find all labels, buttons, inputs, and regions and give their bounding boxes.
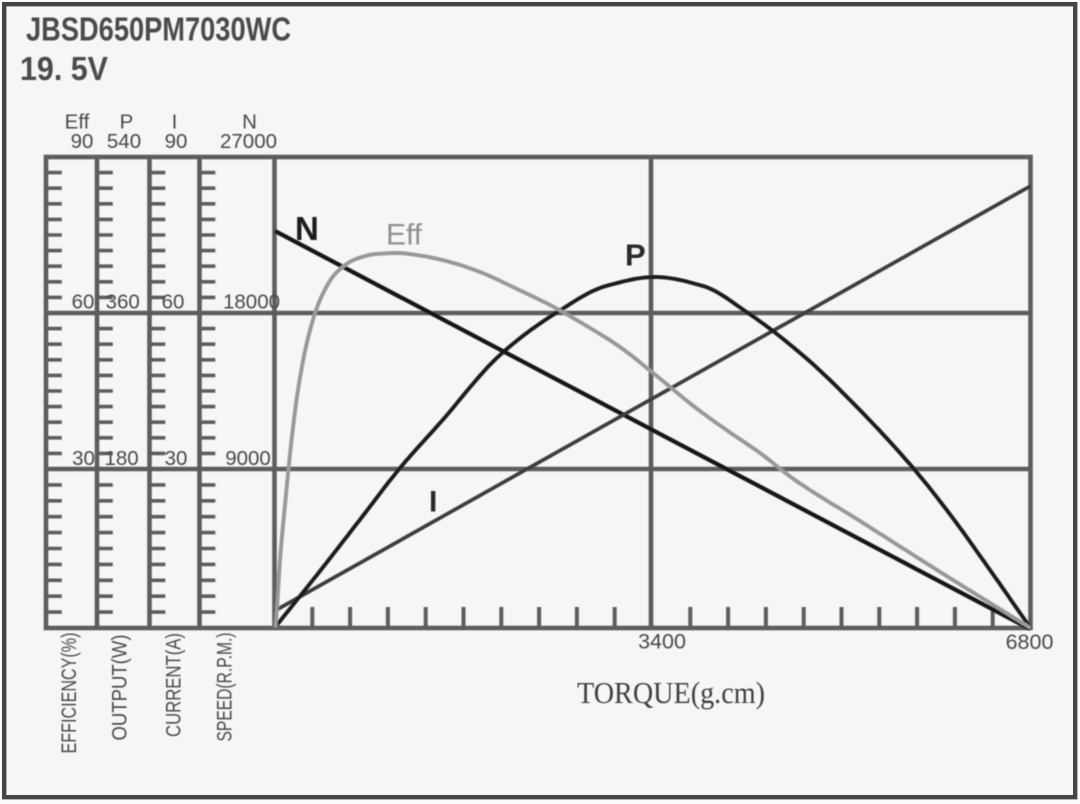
svg-text:540: 540: [107, 130, 141, 153]
svg-text:27000: 27000: [220, 130, 277, 153]
svg-text:Eff: Eff: [386, 219, 423, 252]
svg-text:N: N: [295, 210, 319, 247]
svg-text:19. 5V: 19. 5V: [20, 50, 108, 87]
svg-text:6800: 6800: [1006, 630, 1054, 654]
svg-text:30: 30: [72, 447, 95, 470]
svg-text:60: 60: [72, 291, 95, 314]
svg-text:30: 30: [165, 447, 188, 470]
svg-text:TORQUE(g.cm): TORQUE(g.cm): [577, 675, 765, 710]
svg-text:90: 90: [165, 130, 188, 153]
svg-text:3400: 3400: [638, 630, 686, 654]
svg-text:9000: 9000: [225, 447, 271, 470]
svg-text:P: P: [625, 238, 646, 273]
svg-text:360: 360: [106, 291, 140, 314]
svg-text:90: 90: [71, 130, 94, 153]
svg-text:180: 180: [104, 447, 138, 470]
svg-text:18000: 18000: [223, 291, 280, 314]
svg-text:JBSD650PM7030WC: JBSD650PM7030WC: [26, 11, 291, 48]
svg-text:CURRENT(A): CURRENT(A): [162, 633, 186, 737]
svg-text:I: I: [429, 486, 437, 519]
svg-text:SPEED(R.P.M.): SPEED(R.P.M.): [213, 633, 237, 742]
svg-text:EFFICIENCY(%): EFFICIENCY(%): [57, 633, 81, 754]
svg-text:60: 60: [162, 291, 185, 314]
svg-text:OUTPUT(W): OUTPUT(W): [108, 635, 132, 741]
